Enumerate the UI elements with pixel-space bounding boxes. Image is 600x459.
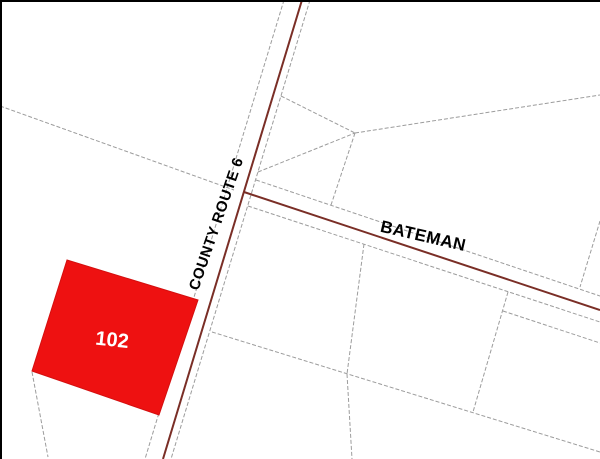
map-frame-top-border: [0, 0, 600, 2]
parcel-boundary: [212, 332, 600, 452]
parcel-boundary: [347, 374, 352, 459]
parcel-boundary: [0, 106, 234, 190]
parcel-boundary: [473, 292, 508, 412]
road-centerline-bateman: [244, 192, 600, 310]
parcel-boundary: [580, 221, 600, 287]
road-centerline-county-route-6: [163, 0, 302, 459]
parcel-boundary: [281, 96, 355, 133]
map-frame-left-border: [0, 0, 2, 459]
parcel-boundary: [347, 244, 364, 374]
parcel-boundary: [503, 311, 600, 343]
parcel-boundary: [355, 95, 600, 133]
road-label-bateman: BATEMAN: [379, 217, 468, 255]
road-edge-county-route-6-east: [171, 0, 310, 459]
parcel-102-label: 102: [94, 328, 129, 353]
parcel-boundary: [32, 372, 48, 457]
parcel-map-canvas: COUNTY ROUTE 6 BATEMAN 102: [0, 0, 600, 459]
map-viewport[interactable]: COUNTY ROUTE 6 BATEMAN 102: [0, 0, 600, 459]
parcel-boundary: [331, 133, 355, 205]
road-edge-bateman-south: [248, 206, 600, 322]
parcel-boundary: [258, 133, 355, 172]
